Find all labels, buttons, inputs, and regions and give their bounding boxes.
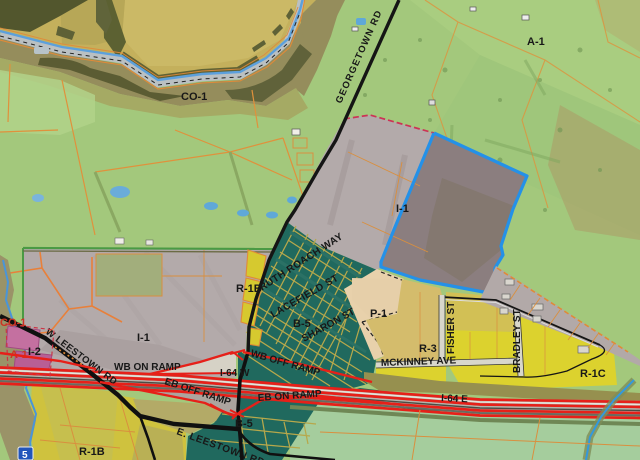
svg-text:R-3: R-3 <box>419 343 437 355</box>
svg-text:B-5: B-5 <box>235 418 253 430</box>
svg-text:P-1: P-1 <box>370 308 387 320</box>
svg-text:I-64 E: I-64 E <box>441 393 469 405</box>
svg-text:I-1: I-1 <box>137 332 150 344</box>
svg-text:I-1: I-1 <box>396 203 409 215</box>
svg-text:5: 5 <box>22 450 28 460</box>
svg-text:A-1: A-1 <box>527 36 545 48</box>
svg-text:WB ON RAMP: WB ON RAMP <box>114 362 181 373</box>
svg-text:I-64 W: I-64 W <box>220 368 250 379</box>
svg-text:FISHER ST: FISHER ST <box>446 302 457 354</box>
svg-text:R-1B: R-1B <box>79 446 105 458</box>
svg-text:CO-1: CO-1 <box>0 317 26 329</box>
svg-text:CO-1: CO-1 <box>181 91 207 103</box>
svg-text:BRADLEY ST: BRADLEY ST <box>512 309 523 373</box>
svg-text:R-1C: R-1C <box>580 368 606 380</box>
svg-text:B-5: B-5 <box>293 318 311 330</box>
